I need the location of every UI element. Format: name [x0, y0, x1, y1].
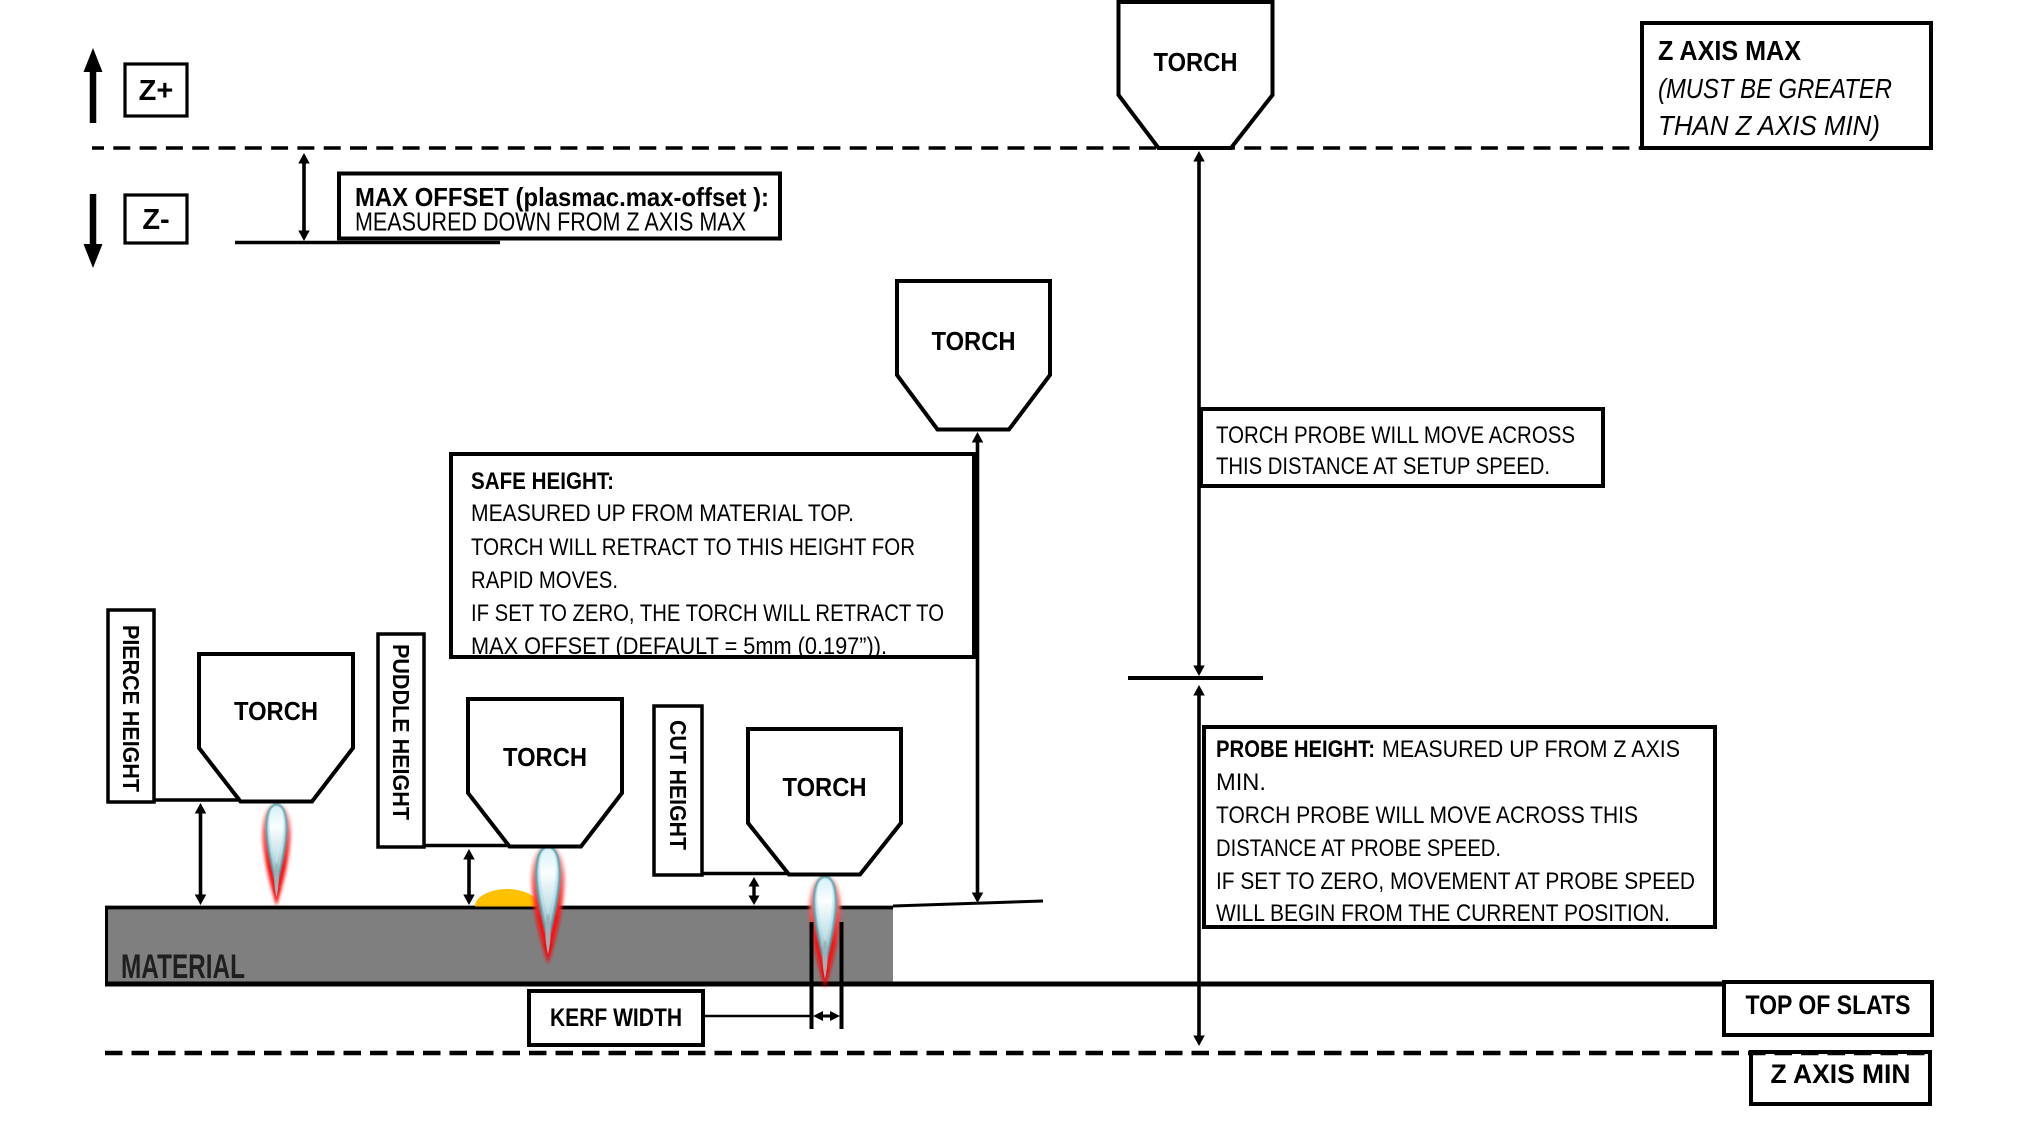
svg-text:TORCH: TORCH: [783, 772, 867, 802]
svg-text:CUT HEIGHT: CUT HEIGHT: [665, 720, 691, 850]
svg-text:TORCH PROBE WILL MOVE ACROSS: TORCH PROBE WILL MOVE ACROSS: [1216, 422, 1575, 449]
svg-text:MIN.: MIN.: [1216, 769, 1266, 796]
svg-text:TORCH WILL RETRACT TO THIS HEI: TORCH WILL RETRACT TO THIS HEIGHT FOR: [471, 534, 915, 561]
svg-text:Z+: Z+: [139, 75, 174, 107]
svg-text:THIS DISTANCE AT SETUP SPEED.: THIS DISTANCE AT SETUP SPEED.: [1216, 453, 1550, 480]
svg-text:IF SET TO ZERO, THE TORCH WILL: IF SET TO ZERO, THE TORCH WILL RETRACT T…: [471, 600, 944, 627]
svg-text:WILL BEGIN FROM THE CURRENT PO: WILL BEGIN FROM THE CURRENT POSITION.: [1216, 900, 1670, 927]
svg-text:PIERCE HEIGHT: PIERCE HEIGHT: [118, 625, 144, 792]
svg-text:TORCH: TORCH: [503, 742, 587, 772]
svg-text:TOP OF SLATS: TOP OF SLATS: [1746, 990, 1911, 1020]
svg-text:MAX OFFSET (DEFAULT = 5mm (0.1: MAX OFFSET (DEFAULT = 5mm (0.197”)).: [471, 633, 887, 660]
svg-text:TORCH PROBE WILL MOVE ACROSS T: TORCH PROBE WILL MOVE ACROSS THIS: [1216, 802, 1638, 829]
svg-text:IF SET TO ZERO, MOVEMENT AT P: IF SET TO ZERO, MOVEMENT AT PROBE SPEED: [1216, 868, 1695, 895]
svg-text:RAPID MOVES.: RAPID MOVES.: [471, 567, 618, 594]
svg-text:MEASURED UP FROM Z AXIS: MEASURED UP FROM Z AXIS: [1382, 736, 1680, 763]
svg-text:Z AXIS MIN: Z AXIS MIN: [1771, 1059, 1911, 1089]
svg-text:MEASURED UP FROM MATERIAL TOP.: MEASURED UP FROM MATERIAL TOP.: [471, 500, 854, 527]
svg-text:MEASURED DOWN FROM Z AXIS MAX: MEASURED DOWN FROM Z AXIS MAX: [355, 207, 746, 237]
svg-text:SAFE HEIGHT:: SAFE HEIGHT:: [471, 468, 614, 495]
svg-text:(MUST BE GREATER: (MUST BE GREATER: [1658, 73, 1892, 104]
svg-text:TORCH: TORCH: [1154, 47, 1238, 77]
svg-text:Z-: Z-: [142, 204, 169, 236]
svg-text:TORCH: TORCH: [234, 696, 318, 726]
svg-text:KERF WIDTH: KERF WIDTH: [550, 1004, 682, 1032]
svg-text:PROBE HEIGHT:: PROBE HEIGHT:: [1216, 736, 1375, 763]
svg-text:DISTANCE AT PROBE SPEED.: DISTANCE AT PROBE SPEED.: [1216, 835, 1501, 862]
svg-text:THAN Z AXIS MIN): THAN Z AXIS MIN): [1658, 110, 1880, 141]
svg-text:TORCH: TORCH: [932, 326, 1016, 356]
svg-text:Z AXIS MAX: Z AXIS MAX: [1658, 35, 1801, 66]
svg-text:MATERIAL: MATERIAL: [121, 948, 245, 986]
svg-text:PUDDLE HEIGHT: PUDDLE HEIGHT: [388, 644, 414, 820]
